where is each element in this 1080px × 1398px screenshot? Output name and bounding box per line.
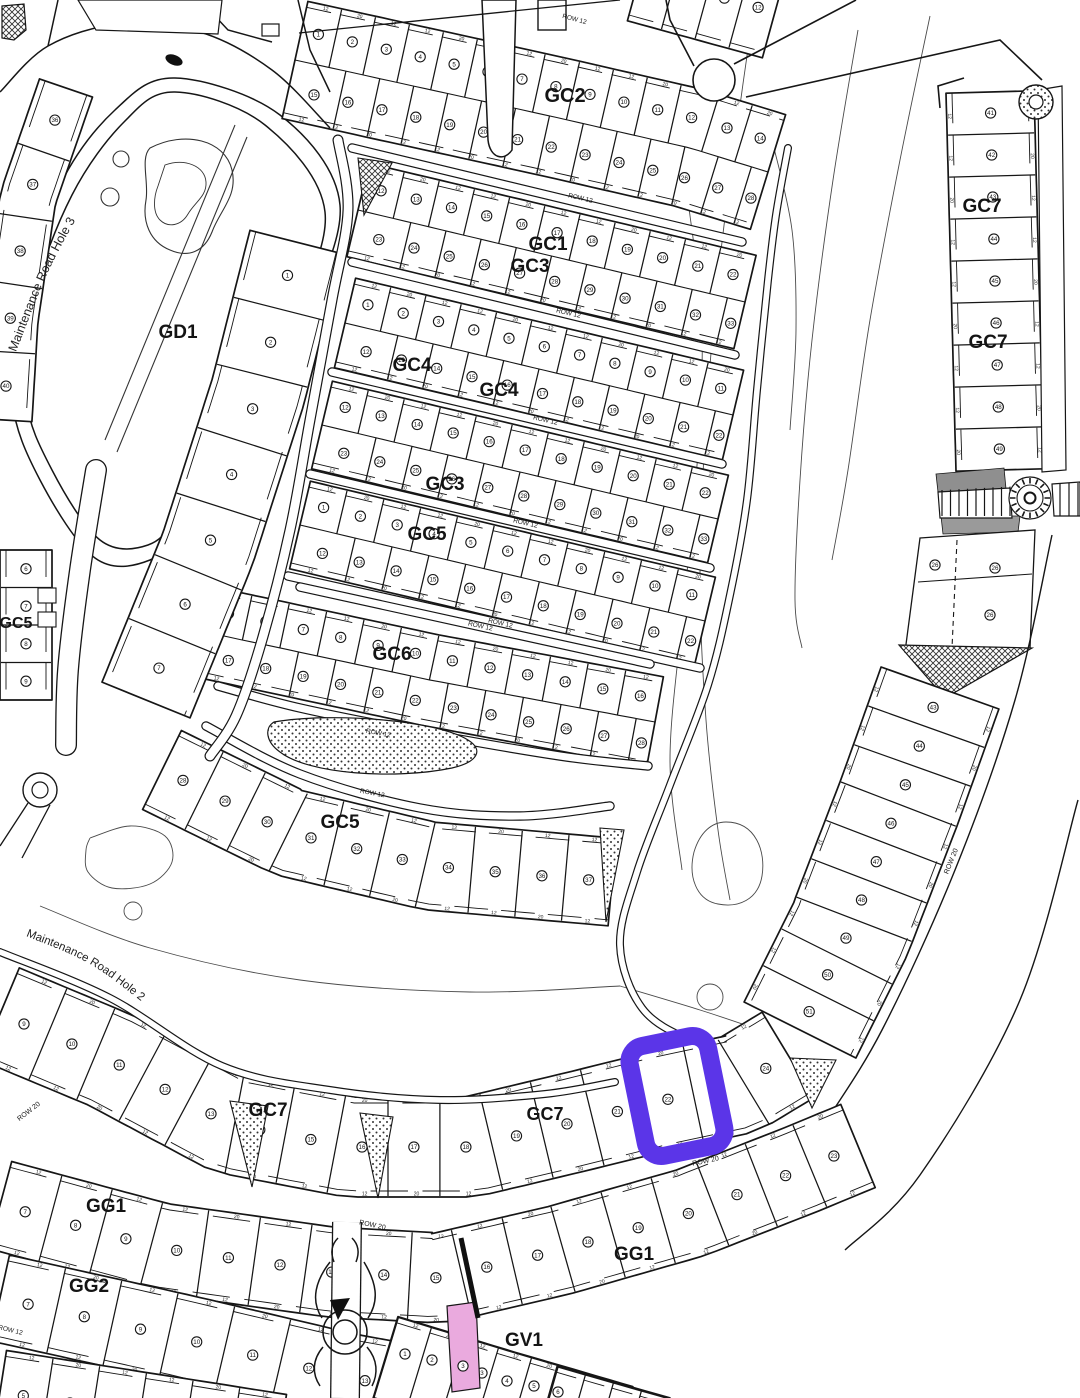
svg-text:21: 21 [514, 137, 521, 144]
svg-text:17: 17 [225, 658, 232, 665]
svg-text:8: 8 [74, 1222, 78, 1229]
svg-text:9: 9 [22, 1021, 26, 1028]
svg-text:28: 28 [551, 279, 558, 286]
svg-text:24: 24 [411, 245, 418, 252]
svg-text:25: 25 [649, 167, 656, 174]
svg-text:7: 7 [578, 352, 582, 359]
svg-text:16: 16 [359, 1144, 366, 1151]
svg-text:7: 7 [24, 603, 28, 610]
svg-text:20: 20 [630, 473, 637, 480]
svg-text:38: 38 [17, 248, 24, 255]
svg-text:45: 45 [902, 782, 909, 789]
svg-text:30: 30 [592, 510, 599, 517]
svg-text:11: 11 [654, 107, 661, 114]
svg-text:20: 20 [480, 129, 487, 136]
svg-text:12: 12 [584, 918, 590, 924]
svg-text:21: 21 [666, 481, 673, 488]
svg-text:GC2: GC2 [544, 85, 585, 107]
svg-text:33: 33 [727, 320, 734, 327]
svg-text:4: 4 [505, 1378, 509, 1385]
svg-text:2: 2 [359, 513, 363, 520]
svg-text:14: 14 [380, 1272, 387, 1279]
svg-text:12: 12 [1034, 363, 1040, 369]
svg-text:11: 11 [689, 592, 696, 599]
svg-text:20: 20 [498, 829, 504, 835]
svg-text:12: 12 [1033, 321, 1039, 327]
svg-text:8: 8 [24, 641, 28, 648]
svg-text:12: 12 [947, 155, 953, 161]
svg-text:10: 10 [193, 1339, 200, 1346]
svg-text:35: 35 [492, 869, 499, 876]
svg-text:29: 29 [556, 502, 563, 509]
svg-text:GC5: GC5 [320, 812, 360, 833]
svg-text:22: 22 [730, 272, 737, 279]
svg-text:22: 22 [715, 432, 722, 439]
svg-text:9: 9 [124, 1236, 128, 1243]
svg-text:44: 44 [990, 236, 997, 243]
svg-text:6: 6 [556, 1389, 560, 1396]
svg-text:GC6: GC6 [372, 644, 411, 665]
svg-text:27: 27 [484, 485, 491, 492]
svg-text:15: 15 [311, 92, 318, 99]
svg-text:8: 8 [580, 566, 584, 573]
svg-text:26: 26 [481, 262, 488, 269]
svg-text:12: 12 [953, 365, 959, 371]
svg-text:10: 10 [68, 1041, 75, 1048]
svg-text:25: 25 [412, 468, 419, 475]
svg-text:21: 21 [614, 1109, 621, 1116]
svg-text:48: 48 [995, 404, 1002, 411]
svg-text:14: 14 [414, 422, 421, 429]
svg-text:39: 39 [7, 315, 14, 322]
svg-text:12: 12 [378, 188, 385, 195]
svg-text:GC5: GC5 [407, 524, 447, 545]
svg-text:12: 12 [491, 910, 497, 916]
svg-text:15: 15 [483, 213, 490, 220]
svg-text:21: 21 [734, 1192, 741, 1199]
svg-text:46: 46 [888, 820, 895, 827]
svg-text:GC7: GC7 [526, 1104, 563, 1124]
svg-text:17: 17 [503, 594, 510, 601]
svg-text:GC4: GC4 [392, 355, 432, 376]
svg-text:24: 24 [376, 459, 383, 466]
svg-text:31: 31 [308, 835, 315, 842]
svg-text:40: 40 [3, 383, 10, 390]
svg-text:31: 31 [628, 519, 635, 526]
svg-text:5: 5 [209, 537, 213, 544]
svg-text:49: 49 [996, 446, 1003, 453]
svg-text:19: 19 [610, 407, 617, 414]
svg-text:GC3: GC3 [510, 256, 549, 277]
svg-text:12: 12 [168, 1377, 175, 1384]
svg-text:42: 42 [988, 152, 995, 159]
svg-text:28: 28 [638, 740, 645, 747]
svg-text:12: 12 [444, 906, 450, 912]
svg-text:15: 15 [469, 374, 476, 381]
svg-text:12: 12 [755, 5, 762, 12]
svg-text:10: 10 [652, 583, 659, 590]
svg-text:22: 22 [687, 638, 694, 645]
svg-text:15: 15 [599, 686, 606, 693]
svg-text:36: 36 [51, 117, 58, 124]
svg-text:GC7: GC7 [968, 332, 1007, 353]
svg-text:7: 7 [520, 76, 524, 83]
svg-text:26: 26 [681, 175, 688, 182]
svg-text:5: 5 [452, 61, 456, 68]
svg-text:12: 12 [451, 825, 457, 831]
svg-text:9: 9 [24, 678, 28, 685]
svg-text:12: 12 [487, 665, 494, 672]
svg-text:47: 47 [873, 859, 880, 866]
svg-text:20: 20 [645, 416, 652, 423]
svg-text:12: 12 [342, 405, 349, 412]
svg-text:GD1: GD1 [158, 322, 198, 343]
svg-text:10: 10 [682, 377, 689, 384]
svg-text:GC3: GC3 [425, 474, 464, 495]
svg-text:26: 26 [932, 562, 939, 569]
svg-text:3: 3 [437, 319, 441, 326]
svg-text:45: 45 [992, 278, 999, 285]
svg-text:GG2: GG2 [69, 1276, 109, 1297]
svg-text:5: 5 [22, 1393, 26, 1398]
svg-text:GC7: GC7 [962, 196, 1001, 217]
svg-text:19: 19 [624, 247, 631, 254]
svg-text:20: 20 [952, 323, 958, 329]
svg-text:12: 12 [954, 407, 960, 413]
svg-text:41: 41 [987, 110, 994, 117]
svg-text:14: 14 [757, 135, 764, 142]
svg-text:12: 12 [466, 1192, 472, 1198]
svg-text:12: 12 [591, 837, 597, 843]
svg-text:20: 20 [614, 620, 621, 627]
svg-text:11: 11 [225, 1255, 232, 1262]
svg-text:12: 12 [545, 833, 551, 839]
svg-text:16: 16 [518, 221, 525, 228]
svg-text:9: 9 [616, 574, 620, 581]
svg-text:20: 20 [955, 449, 961, 455]
svg-text:24: 24 [616, 160, 623, 167]
svg-text:44: 44 [916, 743, 923, 750]
svg-text:16: 16 [637, 693, 644, 700]
svg-text:12: 12 [28, 1355, 35, 1362]
svg-text:46: 46 [993, 320, 1000, 327]
svg-text:15: 15 [450, 430, 457, 437]
svg-text:6: 6 [506, 548, 510, 555]
svg-text:13: 13 [378, 413, 385, 420]
svg-text:13: 13 [356, 559, 363, 566]
svg-text:12: 12 [182, 1207, 189, 1214]
svg-text:12: 12 [262, 1392, 269, 1398]
svg-text:7: 7 [26, 1301, 30, 1308]
svg-text:10: 10 [620, 99, 627, 106]
svg-text:51: 51 [806, 1009, 813, 1016]
svg-text:12: 12 [305, 1365, 312, 1372]
svg-text:19: 19 [635, 1225, 642, 1232]
svg-text:33: 33 [700, 536, 707, 543]
svg-text:11: 11 [116, 1062, 123, 1069]
svg-text:28: 28 [747, 195, 754, 202]
svg-text:22: 22 [664, 1096, 671, 1103]
svg-text:1: 1 [366, 302, 370, 309]
svg-text:34: 34 [445, 865, 452, 872]
svg-text:29: 29 [586, 287, 593, 294]
svg-text:2: 2 [269, 339, 273, 346]
svg-text:GC7: GC7 [248, 1100, 287, 1121]
svg-text:9: 9 [648, 369, 652, 376]
svg-text:3: 3 [251, 406, 255, 413]
svg-text:12: 12 [949, 239, 955, 245]
svg-text:16: 16 [486, 439, 493, 446]
svg-text:3: 3 [461, 1363, 465, 1370]
svg-text:20: 20 [337, 682, 344, 689]
svg-text:22: 22 [548, 144, 555, 151]
svg-text:21: 21 [680, 424, 687, 431]
svg-text:47: 47 [994, 362, 1001, 369]
svg-text:18: 18 [462, 1144, 469, 1151]
svg-text:33: 33 [399, 857, 406, 864]
svg-text:16: 16 [466, 585, 473, 592]
svg-text:20: 20 [1029, 153, 1035, 159]
svg-text:50: 50 [824, 972, 831, 979]
svg-text:7: 7 [302, 627, 306, 634]
svg-text:GC5: GC5 [0, 615, 33, 632]
svg-text:9: 9 [588, 92, 592, 99]
svg-text:32: 32 [692, 312, 699, 319]
svg-text:12: 12 [362, 1192, 368, 1198]
svg-text:6: 6 [183, 601, 187, 608]
svg-text:18: 18 [540, 603, 547, 610]
svg-text:12: 12 [363, 349, 370, 356]
svg-text:17: 17 [410, 1144, 417, 1151]
svg-text:26: 26 [992, 565, 999, 572]
svg-text:20: 20 [234, 1214, 241, 1221]
svg-text:20: 20 [538, 914, 544, 920]
svg-text:20: 20 [1035, 405, 1041, 411]
svg-text:12: 12 [381, 1314, 387, 1320]
svg-text:11: 11 [721, 0, 728, 2]
svg-text:20: 20 [274, 1304, 281, 1311]
svg-text:24: 24 [762, 1066, 769, 1073]
svg-text:32: 32 [664, 527, 671, 534]
svg-text:20: 20 [1032, 279, 1038, 285]
svg-text:12: 12 [277, 1262, 284, 1269]
svg-text:2: 2 [430, 1357, 434, 1364]
svg-text:1: 1 [322, 505, 326, 512]
svg-text:26: 26 [987, 612, 994, 619]
svg-text:14: 14 [393, 568, 400, 575]
svg-text:GC1: GC1 [528, 234, 568, 255]
svg-text:27: 27 [600, 733, 607, 740]
svg-text:16: 16 [483, 1264, 490, 1271]
svg-text:6: 6 [543, 344, 547, 351]
svg-text:2: 2 [401, 310, 405, 317]
svg-text:18: 18 [558, 456, 565, 463]
svg-text:28: 28 [180, 778, 187, 785]
svg-text:14: 14 [448, 205, 455, 212]
svg-text:17: 17 [378, 107, 385, 114]
svg-text:19: 19 [513, 1133, 520, 1140]
svg-text:49: 49 [843, 935, 850, 942]
svg-text:23: 23 [375, 237, 382, 244]
svg-text:20: 20 [948, 197, 954, 203]
svg-text:25: 25 [446, 253, 453, 260]
svg-text:15: 15 [429, 577, 436, 584]
svg-text:6: 6 [24, 566, 28, 573]
svg-text:13: 13 [524, 672, 531, 679]
svg-text:20: 20 [685, 1211, 692, 1218]
svg-text:37: 37 [29, 182, 36, 189]
svg-text:11: 11 [449, 658, 456, 665]
svg-text:20: 20 [386, 1231, 392, 1237]
svg-text:15: 15 [432, 1275, 439, 1282]
svg-text:10: 10 [173, 1248, 180, 1255]
svg-text:20: 20 [564, 1121, 571, 1128]
svg-text:24: 24 [488, 712, 495, 719]
svg-text:16: 16 [344, 99, 351, 106]
svg-text:21: 21 [694, 263, 701, 270]
svg-text:4: 4 [418, 54, 422, 61]
svg-text:1: 1 [317, 32, 321, 39]
svg-text:23: 23 [582, 152, 589, 159]
svg-text:22: 22 [412, 698, 419, 705]
svg-text:5: 5 [469, 540, 473, 547]
svg-text:18: 18 [262, 666, 269, 673]
svg-text:5: 5 [507, 335, 511, 342]
svg-text:11: 11 [717, 386, 724, 393]
svg-text:8: 8 [339, 635, 343, 642]
svg-text:7: 7 [23, 1209, 27, 1216]
svg-text:1: 1 [403, 1351, 407, 1358]
svg-text:18: 18 [574, 399, 581, 406]
svg-text:GV1: GV1 [505, 1330, 543, 1351]
svg-text:12: 12 [946, 113, 952, 119]
svg-text:22: 22 [782, 1173, 789, 1180]
svg-text:18: 18 [585, 1239, 592, 1246]
svg-text:48: 48 [858, 897, 865, 904]
svg-text:GG1: GG1 [86, 1196, 127, 1217]
svg-text:30: 30 [622, 295, 629, 302]
svg-text:13: 13 [724, 125, 731, 132]
svg-text:43: 43 [930, 705, 937, 712]
svg-text:21: 21 [374, 690, 381, 697]
svg-text:19: 19 [300, 674, 307, 681]
svg-text:26: 26 [563, 726, 570, 733]
svg-text:12: 12 [285, 1221, 292, 1228]
svg-text:20: 20 [215, 1384, 222, 1391]
svg-text:13: 13 [413, 196, 420, 203]
svg-text:36: 36 [538, 873, 545, 880]
svg-text:19: 19 [446, 122, 453, 129]
svg-text:12: 12 [1031, 237, 1037, 243]
svg-text:19: 19 [577, 612, 584, 619]
svg-text:15: 15 [307, 1137, 314, 1144]
svg-text:13: 13 [362, 1378, 369, 1385]
svg-text:21: 21 [650, 629, 657, 636]
svg-text:23: 23 [340, 450, 347, 457]
svg-text:12: 12 [1030, 195, 1036, 201]
svg-text:11: 11 [249, 1352, 256, 1359]
svg-text:1: 1 [286, 273, 290, 280]
svg-text:7: 7 [543, 557, 547, 564]
svg-text:9: 9 [139, 1326, 143, 1333]
svg-text:32: 32 [353, 846, 360, 853]
svg-text:25: 25 [525, 719, 532, 726]
svg-text:18: 18 [589, 238, 596, 245]
svg-text:14: 14 [433, 366, 440, 373]
svg-text:19: 19 [594, 464, 601, 471]
svg-text:30: 30 [264, 819, 271, 826]
svg-text:2: 2 [351, 39, 355, 46]
svg-text:10: 10 [412, 651, 419, 658]
svg-text:12: 12 [951, 281, 957, 287]
svg-text:17: 17 [522, 447, 529, 454]
svg-text:20: 20 [414, 1192, 420, 1198]
svg-text:17: 17 [539, 391, 546, 398]
svg-text:5: 5 [532, 1383, 536, 1390]
svg-text:7: 7 [157, 665, 161, 672]
svg-text:12: 12 [438, 1234, 444, 1240]
svg-text:12: 12 [162, 1087, 169, 1094]
svg-text:8: 8 [613, 360, 617, 367]
svg-text:GC4: GC4 [479, 380, 519, 401]
svg-text:20: 20 [659, 255, 666, 262]
svg-text:20: 20 [433, 1317, 439, 1323]
svg-text:3: 3 [385, 46, 389, 53]
svg-text:12: 12 [319, 551, 326, 558]
svg-text:GG1: GG1 [614, 1244, 655, 1265]
svg-text:37: 37 [585, 877, 592, 884]
svg-text:29: 29 [222, 798, 229, 805]
svg-text:28: 28 [520, 493, 527, 500]
svg-text:31: 31 [657, 304, 664, 311]
svg-text:23: 23 [450, 705, 457, 712]
svg-text:4: 4 [230, 472, 234, 479]
svg-text:12: 12 [688, 115, 695, 122]
svg-text:8: 8 [83, 1314, 87, 1321]
svg-text:3: 3 [480, 1370, 484, 1377]
svg-text:20: 20 [75, 1362, 82, 1369]
svg-text:14: 14 [562, 679, 569, 686]
svg-text:3: 3 [395, 522, 399, 529]
svg-text:22: 22 [702, 490, 709, 497]
svg-text:18: 18 [412, 114, 419, 121]
svg-text:13: 13 [208, 1111, 215, 1118]
svg-text:12: 12 [122, 1370, 129, 1377]
svg-text:27: 27 [714, 185, 721, 192]
svg-text:23: 23 [830, 1153, 837, 1160]
svg-text:4: 4 [472, 327, 476, 334]
svg-text:17: 17 [534, 1252, 541, 1259]
